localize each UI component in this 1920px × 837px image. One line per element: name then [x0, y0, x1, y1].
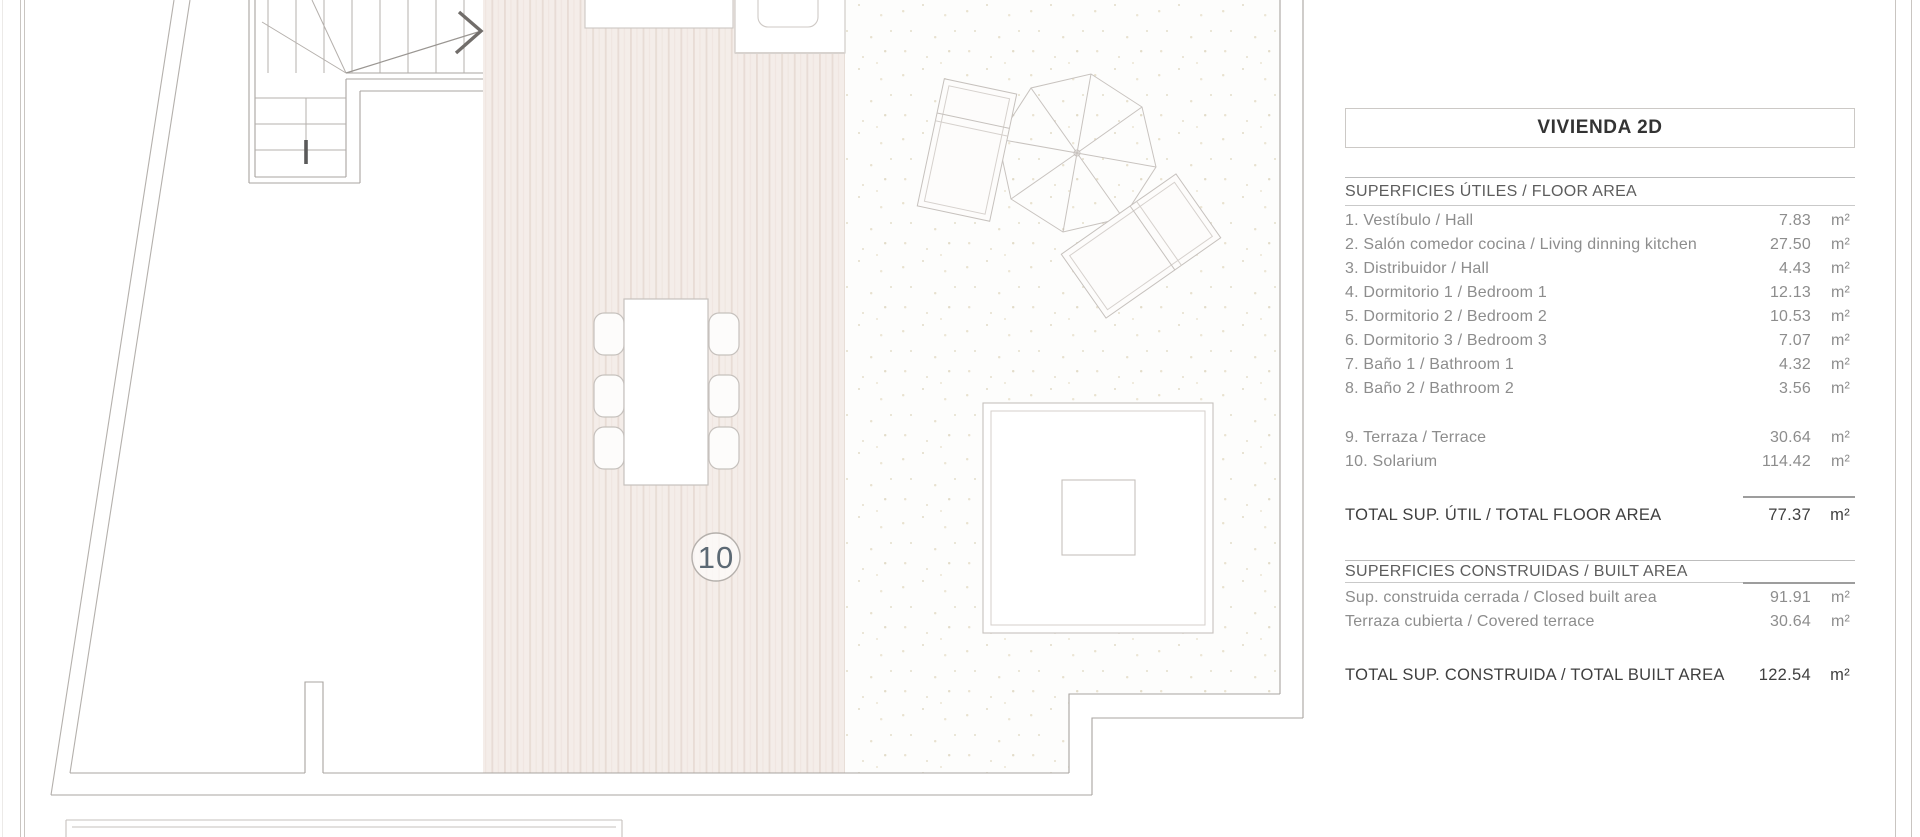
room-area-unit: m² [1811, 332, 1855, 350]
built-value: 91.91 [1737, 589, 1811, 607]
dining-table [624, 299, 708, 485]
room-area-value: 12.13 [1737, 284, 1811, 302]
room-area-unit: m² [1811, 429, 1855, 447]
room-label: 10. Solarium [1345, 453, 1737, 471]
total-label: TOTAL SUP. CONSTRUIDA / TOTAL BUILT AREA [1345, 666, 1737, 685]
room-area-value: 3.56 [1737, 380, 1811, 398]
built-divider [1743, 582, 1855, 584]
room-area-value: 4.43 [1737, 260, 1811, 278]
area-summary-panel: VIVIENDA 2D SUPERFICIES ÚTILES / FLOOR A… [1345, 0, 1855, 837]
room-area-value: 7.07 [1737, 332, 1811, 350]
total-floor-area-row: TOTAL SUP. ÚTIL / TOTAL FLOOR AREA 77.37… [1345, 502, 1855, 528]
room-label: 5. Dormitorio 2 / Bedroom 2 [1345, 308, 1737, 326]
room-label: 1. Vestíbulo / Hall [1345, 212, 1737, 230]
built-label: Terraza cubierta / Covered terrace [1345, 613, 1737, 631]
table-row: 9. Terraza / Terrace 30.64 m² [1345, 426, 1855, 450]
total-label: TOTAL SUP. ÚTIL / TOTAL FLOOR AREA [1345, 506, 1737, 525]
floorplan-sheet: 10 VIVIENDA 2D SUPERFICIES ÚTILES / FLOO… [0, 0, 1920, 837]
room-area-unit: m² [1811, 308, 1855, 326]
total-value: 77.37 [1737, 506, 1811, 525]
total-divider [1743, 496, 1855, 498]
solarium-number-label: 10 [698, 540, 734, 575]
total-built-area-row: TOTAL SUP. CONSTRUIDA / TOTAL BUILT AREA… [1345, 662, 1855, 688]
total-unit: m² [1811, 506, 1855, 525]
stair-walk-line [306, 12, 481, 164]
room-area-unit: m² [1811, 236, 1855, 254]
lower-structure [66, 820, 622, 837]
room-label: 3. Distribuidor / Hall [1345, 260, 1737, 278]
chair [594, 427, 624, 469]
built-label: Sup. construida cerrada / Closed built a… [1345, 589, 1737, 607]
dining-table-set [594, 299, 739, 485]
room-area-value: 7.83 [1737, 212, 1811, 230]
room-area-value: 114.42 [1737, 453, 1811, 471]
room-area-unit: m² [1811, 380, 1855, 398]
chair [709, 375, 739, 417]
table-row: 8. Baño 2 / Bathroom 2 3.56 m² [1345, 377, 1855, 401]
room-area-value: 4.32 [1737, 356, 1811, 374]
room-area-unit: m² [1811, 284, 1855, 302]
outdoor-area-rows: 9. Terraza / Terrace 30.64 m² 10. Solari… [1345, 426, 1855, 474]
terrace-stipple-area [845, 0, 1280, 773]
table-row: 3. Distribuidor / Hall 4.43 m² [1345, 257, 1855, 281]
table-row: Terraza cubierta / Covered terrace 30.64… [1345, 610, 1855, 634]
room-label: 9. Terraza / Terrace [1345, 429, 1737, 447]
built-value: 30.64 [1737, 613, 1811, 631]
solarium-number-badge: 10 [692, 533, 740, 581]
table-row: 6. Dormitorio 3 / Bedroom 3 7.07 m² [1345, 329, 1855, 353]
built-unit: m² [1811, 613, 1855, 631]
room-label: 8. Baño 2 / Bathroom 2 [1345, 380, 1737, 398]
room-label: 2. Salón comedor cocina / Living dinning… [1345, 236, 1737, 254]
table-row: 7. Baño 1 / Bathroom 1 4.32 m² [1345, 353, 1855, 377]
total-unit: m² [1811, 666, 1855, 685]
table-row: 1. Vestíbulo / Hall 7.83 m² [1345, 209, 1855, 233]
staircase [249, 0, 483, 183]
room-area-unit: m² [1811, 356, 1855, 374]
property-boundary [51, 0, 190, 795]
room-area-unit: m² [1811, 260, 1855, 278]
room-area-unit: m² [1811, 212, 1855, 230]
chair [709, 427, 739, 469]
table-row: 4. Dormitorio 1 / Bedroom 1 12.13 m² [1345, 281, 1855, 305]
stair-walls [249, 0, 483, 183]
room-area-unit: m² [1811, 453, 1855, 471]
floor-area-section-header: SUPERFICIES ÚTILES / FLOOR AREA [1345, 177, 1855, 206]
chair [594, 375, 624, 417]
total-value: 122.54 [1737, 666, 1811, 685]
built-unit: m² [1811, 589, 1855, 607]
table-row: 10. Solarium 114.42 m² [1345, 450, 1855, 474]
built-area-rows: Sup. construida cerrada / Closed built a… [1345, 586, 1855, 634]
unit-title: VIVIENDA 2D [1345, 108, 1855, 148]
room-area-value: 27.50 [1737, 236, 1811, 254]
jacuzzi-basin [758, 0, 818, 27]
top-cutout [585, 0, 733, 28]
floor-area-rows: 1. Vestíbulo / Hall 7.83 m² 2. Salón com… [1345, 209, 1855, 401]
room-label: 7. Baño 1 / Bathroom 1 [1345, 356, 1737, 374]
table-row: 2. Salón comedor cocina / Living dinning… [1345, 233, 1855, 257]
room-label: 4. Dormitorio 1 / Bedroom 1 [1345, 284, 1737, 302]
skylight-structure [983, 403, 1213, 633]
room-area-value: 30.64 [1737, 429, 1811, 447]
room-label: 6. Dormitorio 3 / Bedroom 3 [1345, 332, 1737, 350]
stair-direction-arrow-icon [456, 12, 481, 53]
chair [594, 313, 624, 355]
built-area-section-header: SUPERFICIES CONSTRUIDAS / BUILT AREA [1345, 560, 1855, 583]
table-row: 5. Dormitorio 2 / Bedroom 2 10.53 m² [1345, 305, 1855, 329]
table-row: Sup. construida cerrada / Closed built a… [1345, 586, 1855, 610]
room-area-value: 10.53 [1737, 308, 1811, 326]
chair [709, 313, 739, 355]
